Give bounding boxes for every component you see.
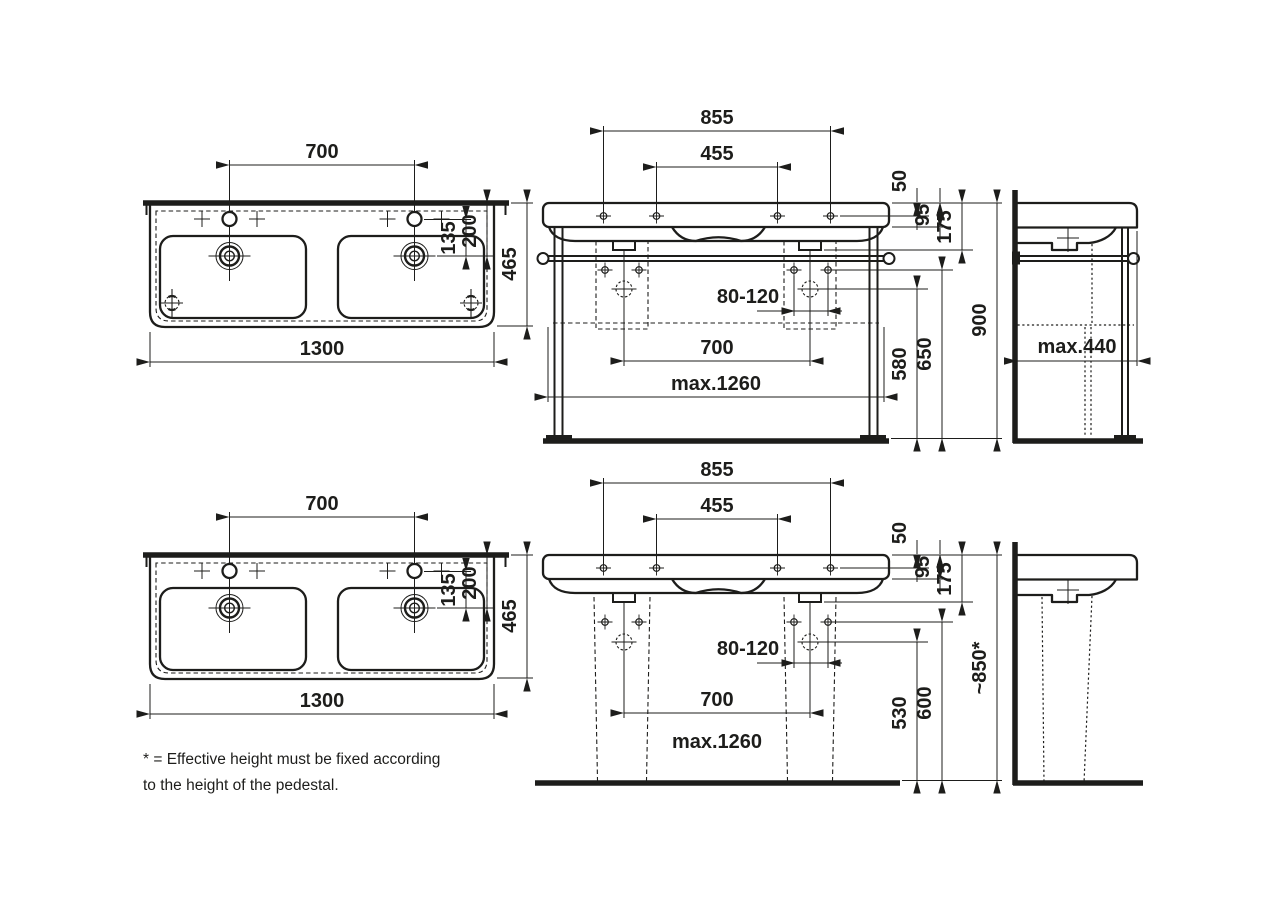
dim-label-drain-range: 80-120: [717, 638, 779, 660]
towel-rail-side: [1018, 256, 1132, 261]
dim-label-apron: 95: [912, 556, 934, 578]
alt-tap-mark: [194, 211, 210, 227]
footnote: * = Effective height must be fixed accor…: [143, 751, 440, 794]
alt-tap-mark: [380, 211, 396, 227]
bracket-hole: [632, 263, 647, 278]
front-view-frame-version: 855 455 50 95 175 580 650 900 700 max.12…: [538, 107, 1003, 441]
dim-label-drain-spacing: 700: [700, 337, 733, 359]
wall-bracket-tabs: [613, 241, 821, 250]
dim-label-outer-holes: 855: [700, 459, 733, 481]
siphon-cover-hidden: [596, 241, 836, 329]
dim-label-width: 1300: [300, 690, 345, 712]
ext-lines-drain-range: [794, 276, 828, 316]
leg-foot: [1114, 435, 1136, 441]
dim-label-inner-holes: 455: [700, 495, 733, 517]
dim-label-drain-height: 580: [889, 347, 911, 380]
dim-label-outer-holes: 855: [700, 107, 733, 129]
dim-label-depth: 465: [499, 599, 521, 632]
drain-cross-mark: [1057, 227, 1079, 252]
bracket-hole: [598, 615, 613, 630]
bowl-underside: [549, 579, 883, 593]
ext-lines-outer-holes: [604, 126, 831, 212]
alt-tap-mark: [380, 563, 396, 579]
dim-label-max-width: max.1260: [672, 731, 762, 753]
bowl-underside: [549, 227, 883, 241]
dim-label-width: 1300: [300, 338, 345, 360]
pedestal-hidden-outline: [1042, 596, 1092, 783]
drain-symbol-left: [209, 590, 251, 626]
dim-label-total-height: 900: [969, 303, 991, 336]
alt-tap-mark: [249, 211, 265, 227]
dim-label-rim-to-holes: 50: [889, 170, 911, 192]
dim-label-drain-spacing: 700: [700, 689, 733, 711]
dim-label-tap-to-drain: 135: [438, 573, 460, 606]
dim-label-body: 175: [934, 210, 956, 243]
side-view-frame-version: max.440: [1012, 190, 1143, 443]
wall-end-ticks: [147, 557, 506, 567]
ext-lines-outer-holes: [604, 478, 831, 564]
fixing-screw-icon: [161, 289, 183, 317]
frame-legs: [555, 227, 878, 435]
rail-wall-bracket: [1012, 252, 1020, 265]
wall-bracket-tabs: [613, 593, 821, 602]
front-view-pedestal-version: 855 455 50 95 175 530 600 ~850* 700 max.…: [535, 459, 1002, 783]
alt-tap-mark: [249, 563, 265, 579]
bracket-hole: [821, 615, 836, 630]
basin-side-profile: [1018, 555, 1138, 580]
dim-label-rim-to-holes: 50: [889, 522, 911, 544]
dim-label-tap-spacing: 700: [305, 493, 338, 515]
technical-drawing-washbasin: 700 1300 465 135 200: [0, 0, 1280, 900]
tap-hole-left: [223, 212, 237, 226]
bracket-hole: [787, 615, 802, 630]
center-divider: [672, 579, 765, 593]
dim-label-frame-width: max.1260: [671, 373, 761, 395]
tap-hole-left: [223, 564, 237, 578]
towel-rail: [548, 256, 884, 261]
alt-tap-mark: [194, 563, 210, 579]
basin-front-outline: [543, 555, 889, 579]
dim-label-drain-height: 530: [889, 696, 911, 729]
tap-hole-right: [408, 212, 422, 226]
bowl-side-underside: [1018, 228, 1117, 251]
side-view-pedestal-version: [1013, 542, 1143, 785]
dim-label-inner-holes: 455: [700, 143, 733, 165]
ext-lines-inner-holes: [657, 514, 778, 564]
rail-end-cap: [538, 253, 549, 264]
dim-label-bracket-height: 650: [914, 337, 936, 370]
drain-symbol-right: [394, 238, 436, 274]
dim-label-depth: 465: [499, 247, 521, 280]
center-divider: [672, 227, 765, 241]
dim-label-bracket-height: 600: [914, 686, 936, 719]
dim-label-rim-to-drain: 200: [459, 214, 481, 247]
dim-label-drain-range: 80-120: [717, 286, 779, 308]
wall-end-ticks: [147, 205, 506, 215]
dim-label-apron: 95: [912, 204, 934, 226]
basin-side-profile: [1018, 203, 1138, 228]
dim-label-frame-depth: max.440: [1038, 336, 1117, 358]
plan-view-pedestal-version: 700 1300 465 135 200: [143, 493, 533, 719]
tap-hole-right: [408, 564, 422, 578]
fixing-screw-icon: [460, 289, 482, 317]
drain-symbol-right: [394, 590, 436, 626]
footnote-line-2: to the height of the pedestal.: [143, 777, 339, 794]
dim-label-tap-to-drain: 135: [438, 221, 460, 254]
dim-label-body: 175: [934, 562, 956, 595]
dim-label-total-height: ~850*: [969, 641, 991, 694]
footnote-line-1: * = Effective height must be fixed accor…: [143, 751, 440, 768]
bracket-hole: [632, 615, 647, 630]
bowl-side-underside: [1018, 580, 1117, 603]
frame-leg-side: [1122, 228, 1128, 436]
bracket-hole: [787, 263, 802, 278]
basin-front-outline: [543, 203, 889, 227]
rail-end-cap: [884, 253, 895, 264]
drain-cross-mark: [1057, 579, 1079, 604]
drain-symbol-left: [209, 238, 251, 274]
ext-lines-inner-holes: [657, 162, 778, 212]
dim-label-rim-to-drain: 200: [459, 566, 481, 599]
bracket-hole: [598, 263, 613, 278]
bracket-hole: [821, 263, 836, 278]
plan-view-frame-version: 700 1300 465 135 200: [143, 141, 533, 367]
dim-label-tap-spacing: 700: [305, 141, 338, 163]
